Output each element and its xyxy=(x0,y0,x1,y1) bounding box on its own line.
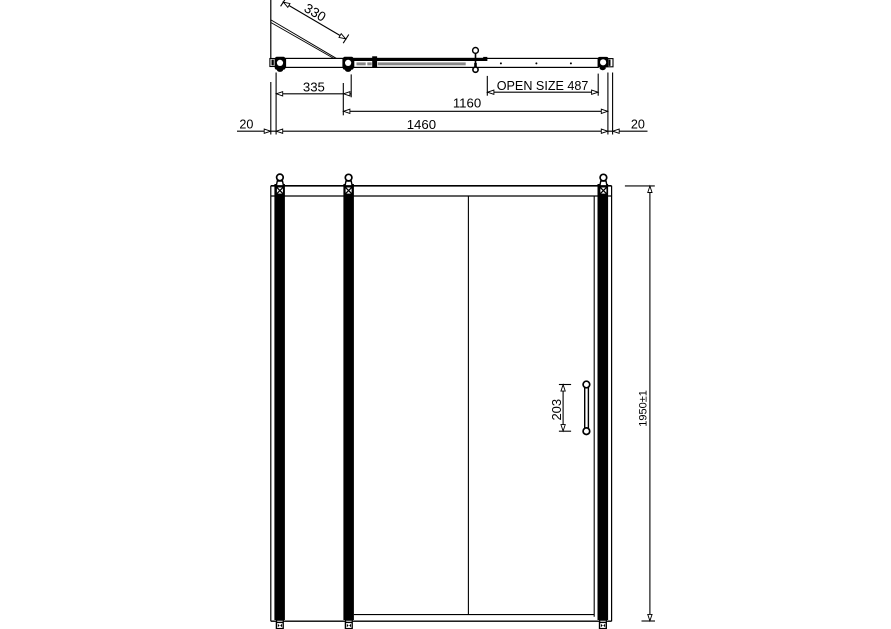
svg-text:1160: 1160 xyxy=(453,96,481,111)
svg-text:203: 203 xyxy=(549,399,564,421)
svg-text:OPEN SIZE 487: OPEN SIZE 487 xyxy=(497,79,589,93)
svg-text:1460: 1460 xyxy=(407,117,436,132)
svg-text:20: 20 xyxy=(631,117,645,131)
svg-text:335: 335 xyxy=(303,80,325,95)
svg-text:20: 20 xyxy=(239,117,253,131)
svg-text:1950±1: 1950±1 xyxy=(637,390,649,427)
